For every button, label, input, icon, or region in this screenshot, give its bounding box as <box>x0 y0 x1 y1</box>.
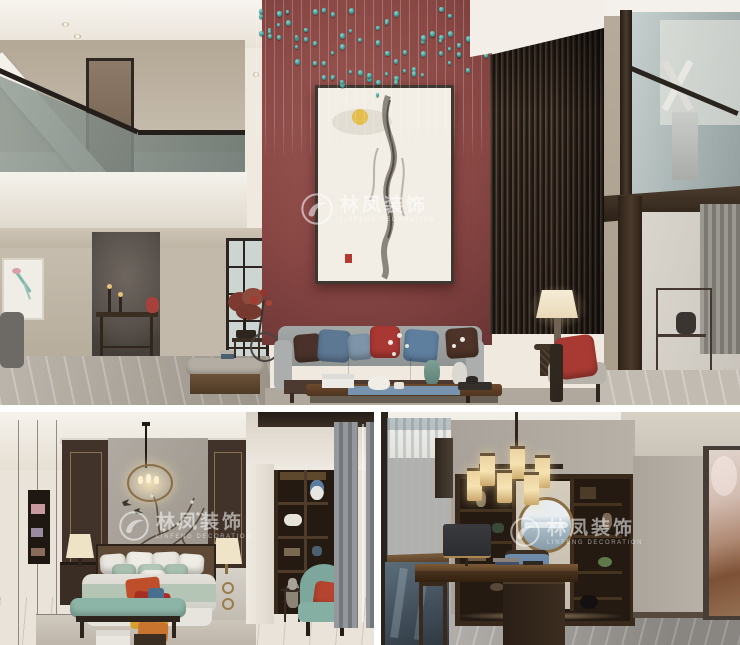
crystal-drop <box>277 11 282 17</box>
crystal-drop <box>394 11 399 17</box>
crystal-drop <box>349 8 354 14</box>
crystal-drop <box>259 14 263 19</box>
artwork-canvas <box>709 450 740 616</box>
crystal-drop <box>385 72 388 76</box>
crystal-drop <box>277 23 280 27</box>
mezzanine-frame <box>620 10 632 198</box>
shelf-line <box>574 535 622 538</box>
crystal-drop <box>403 50 407 55</box>
crystal-drop <box>439 51 443 56</box>
shelf-line <box>278 502 328 505</box>
bed-bench-cushion <box>70 598 186 618</box>
bed-bench-frame <box>76 616 180 622</box>
shelf-divider <box>570 479 574 611</box>
abstract-painting <box>2 258 44 320</box>
crystal-drop <box>421 73 424 77</box>
photo-living-room: 林凤装饰 LINFENG DECORATION <box>0 0 740 405</box>
bench-base <box>190 374 260 394</box>
crystal-drop <box>448 61 451 65</box>
shelf-box <box>580 487 596 499</box>
shelf-line <box>574 571 622 574</box>
right-wall <box>633 456 709 618</box>
shelf-line <box>460 509 512 512</box>
table-lamp-shade <box>536 290 578 318</box>
desk-leg-frame <box>419 582 447 645</box>
crystal-drop <box>430 31 435 37</box>
crystal-drop <box>340 33 345 39</box>
niche-object <box>31 548 45 556</box>
ceiling-spotlight <box>74 34 81 39</box>
teacup <box>394 382 404 389</box>
blossom-dot <box>452 344 456 348</box>
candle-flame <box>107 284 112 289</box>
teal-vase <box>424 360 440 386</box>
door-frame-column <box>618 196 642 378</box>
books <box>284 548 300 556</box>
dark-sphere <box>580 595 598 609</box>
crystal-drop <box>448 47 451 51</box>
crystal-drop <box>394 59 398 64</box>
crystal-drop <box>331 76 334 80</box>
crystal-drop <box>322 75 326 80</box>
mezzanine-fascia <box>0 172 247 232</box>
shelf-line <box>574 503 622 506</box>
crystal-drop <box>259 9 263 14</box>
curtain <box>366 422 374 628</box>
console-table <box>96 312 158 317</box>
crystal-drop <box>394 80 398 85</box>
photo-bedroom: 林凤装饰 LINFENG DECORATION <box>0 412 374 645</box>
shelf-bowl <box>490 583 504 591</box>
blossom-dot <box>405 344 409 348</box>
crystal-drop <box>259 31 264 37</box>
bench-books <box>221 354 234 359</box>
baseboard <box>633 612 709 618</box>
stool-leg <box>596 384 600 402</box>
gray-chair <box>0 312 24 368</box>
console-shelf <box>100 346 153 348</box>
crystal-drop <box>313 9 318 15</box>
sofa-leg <box>290 393 294 403</box>
bonsai-leaves <box>236 304 262 320</box>
table-runner <box>348 386 460 395</box>
handrail <box>138 130 245 135</box>
shelf-line <box>278 536 328 539</box>
coffee-table-shadow <box>310 396 498 403</box>
crystal-drop <box>385 51 390 57</box>
crystal-drop <box>349 70 352 74</box>
bedside-lamp-shade <box>212 538 242 564</box>
white-box <box>322 374 354 388</box>
wall-mid <box>160 248 228 368</box>
crystal-drop <box>340 80 344 85</box>
crystal-drop <box>304 37 308 42</box>
candlestick <box>119 296 122 312</box>
bedside-lamp-stem <box>225 564 228 574</box>
chandelier-bulb <box>146 474 151 483</box>
crystal-drop <box>376 80 381 86</box>
bench-leg <box>172 622 176 638</box>
wall-column <box>246 464 274 624</box>
crystal-drop <box>358 38 362 43</box>
crystal-drop <box>439 39 442 43</box>
chandelier-bulb <box>138 476 143 484</box>
shelf-plant <box>598 557 612 567</box>
candlestick <box>108 288 111 312</box>
table-vase <box>288 578 297 590</box>
crystal-drop <box>286 10 289 14</box>
desk-tray <box>523 561 543 565</box>
crystal-drop <box>331 12 335 17</box>
crystal-drop <box>421 35 426 41</box>
chandelier-shade <box>510 446 525 479</box>
chandelier-canopy <box>142 422 150 426</box>
blossom-dot <box>392 352 396 356</box>
glass-reflection <box>390 568 408 638</box>
teapot <box>368 376 390 390</box>
window-pillar <box>435 438 453 498</box>
bench-leg <box>80 622 84 638</box>
chandelier-shade <box>480 453 495 486</box>
paint-stroke-pink <box>12 268 21 274</box>
crystal-drop <box>340 44 345 50</box>
bottle <box>312 546 322 556</box>
crystal-drop <box>421 51 426 57</box>
desk-cabinet <box>503 582 565 645</box>
shelf-vase <box>602 513 612 529</box>
storage-box <box>96 630 130 645</box>
desk-lamp-stem <box>465 558 468 566</box>
mist-band <box>524 522 568 528</box>
niche-glow <box>280 472 326 480</box>
red-vase <box>146 297 159 313</box>
crystal-drop <box>331 51 334 55</box>
chandelier-shade <box>524 472 539 505</box>
red-blossom <box>250 296 258 304</box>
display-shelf <box>658 334 706 337</box>
lantern-chandelier <box>127 464 173 502</box>
crystal-drop <box>268 34 272 39</box>
red-blossom <box>266 300 272 306</box>
crystal-drop <box>313 61 317 66</box>
desk-edge <box>415 571 578 582</box>
crystal-drop <box>295 59 300 65</box>
drawer-ring-pull <box>222 598 234 610</box>
armchair-leg <box>306 622 310 636</box>
crystal-drop <box>439 7 444 13</box>
bedside-lamp-shade <box>66 534 94 558</box>
chandelier-stem <box>145 424 147 468</box>
folded-cloth <box>284 514 302 526</box>
crystal-drop <box>376 40 380 45</box>
crystal-drop <box>304 28 308 33</box>
stool-leg <box>556 384 560 402</box>
console-leg <box>100 317 103 357</box>
crystal-drop <box>466 68 470 73</box>
dark-case <box>134 634 166 645</box>
crystal-drop <box>322 61 326 66</box>
desk-top <box>415 564 578 571</box>
crystal-drop <box>286 20 291 26</box>
crystal-drop <box>367 73 372 79</box>
bedside-lamp-base <box>78 558 82 566</box>
crystal-drop <box>313 41 317 46</box>
curtain <box>334 422 358 628</box>
niche-object <box>31 528 43 537</box>
console-leg <box>150 317 153 357</box>
crystal-drop <box>376 93 379 97</box>
crystal-drop <box>277 35 281 40</box>
photo-collage: 林凤装饰 LINFENG DECORATION <box>0 0 740 645</box>
window-top-shadow <box>387 418 451 430</box>
artwork-highlight <box>711 456 737 496</box>
crystal-drop <box>358 70 363 76</box>
crystal-drop <box>403 69 406 73</box>
niche-object <box>31 504 45 514</box>
blossom-dot <box>460 337 465 342</box>
chandelier-bulb <box>154 476 159 484</box>
red-blossom <box>260 289 267 296</box>
crystal-drop <box>349 29 352 33</box>
round-moon-artwork <box>518 497 574 553</box>
desk-lamp-shade <box>443 524 491 558</box>
desk-books <box>495 562 519 565</box>
crystal-drop <box>385 21 388 25</box>
blossom-dot <box>397 333 402 338</box>
blossom-dot <box>388 340 393 345</box>
shelf-pot <box>492 523 504 533</box>
chandelier-shade <box>497 470 512 503</box>
sculpture-pedestal <box>672 112 698 180</box>
crystal-drop <box>412 71 416 76</box>
display-sculpture <box>676 312 696 334</box>
porcelain-jar <box>310 480 324 500</box>
floor-right <box>596 370 740 405</box>
small-teapot <box>466 376 478 384</box>
pillow-brown <box>445 327 479 359</box>
candle-flame <box>118 292 123 297</box>
photo-study: 林凤装饰 LINFENG DECORATION <box>381 412 740 645</box>
side-table-leg <box>284 592 286 622</box>
crystal-drop <box>376 26 380 31</box>
crystal-drop <box>448 31 453 37</box>
crystal-drop <box>322 8 326 13</box>
crystal-drop <box>295 45 298 49</box>
crystal-drop <box>457 43 461 48</box>
ceiling-spotlight <box>62 22 69 27</box>
crystal-drop <box>448 14 452 19</box>
drawer-ring-pull <box>222 582 234 594</box>
